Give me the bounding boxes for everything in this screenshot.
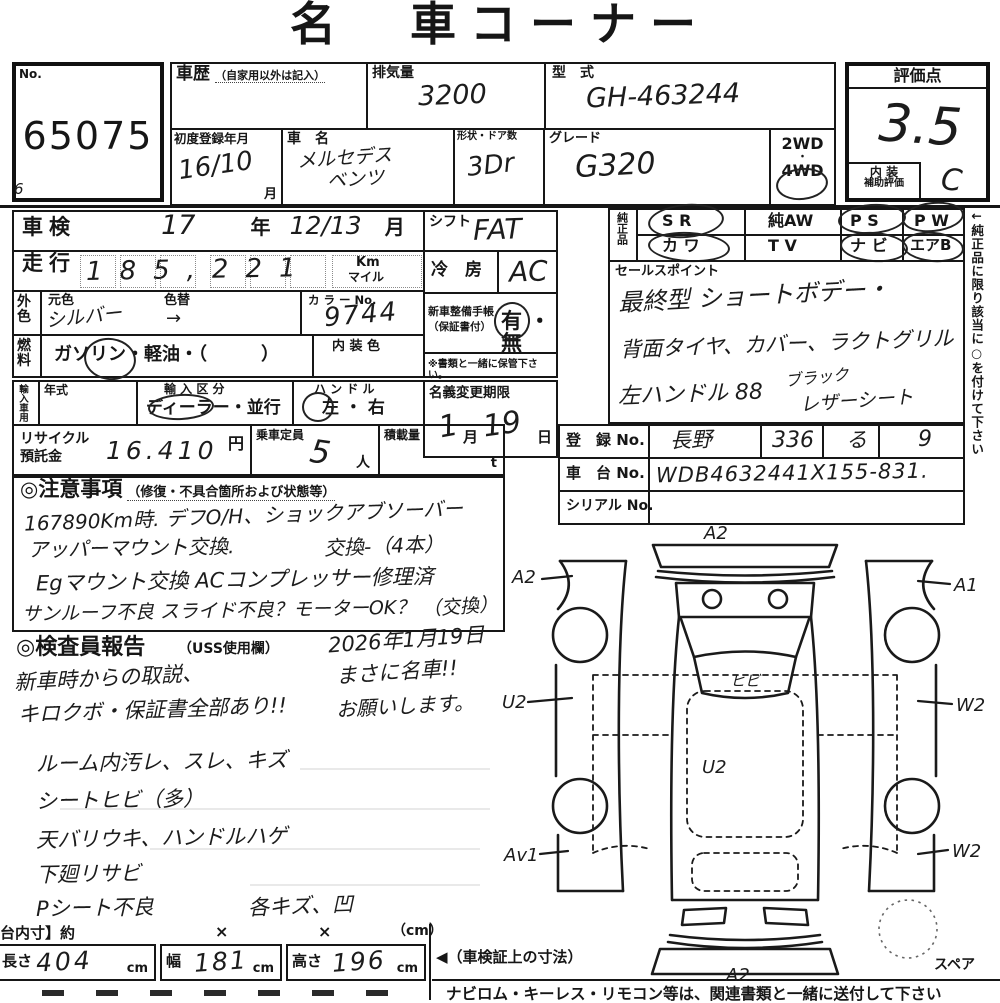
- length-value: 404: [35, 948, 93, 976]
- left-rear-wheel: [553, 779, 607, 833]
- grade-cell: グレード G320: [543, 128, 771, 206]
- shaken-month-value: 12/13: [290, 211, 362, 240]
- shaken-year-value: 17: [161, 210, 195, 241]
- auction-sheet: 名 車コーナー No. 65075 6 車歴 （自家用以外は記入） 排気量 32…: [0, 0, 1000, 1000]
- lot-number-box: No. 65075: [12, 62, 164, 202]
- sales-points-box: セールスポイント 最終型 ショートボデー・ 背面タイヤ、カバー、ラクトグリル 左…: [608, 260, 965, 424]
- headlight-left: [703, 590, 721, 608]
- history-note: （自家用以外は記入）: [215, 69, 325, 83]
- footer-glyph-sliver: [150, 990, 172, 996]
- interior-label-1: 内 装: [849, 166, 919, 179]
- width-unit: cm: [253, 962, 274, 976]
- caution-line-2b: 交換-（4本）: [324, 534, 445, 558]
- load-cell: 積載量 t: [378, 424, 505, 476]
- mileage-unit-mile: マイル: [348, 271, 384, 284]
- left-strip-inner: [619, 561, 626, 891]
- footer-glyph-sliver: [258, 990, 280, 996]
- int-color-label: 内 装 色: [332, 340, 380, 354]
- damage-label-right-mid: W2: [956, 695, 985, 716]
- headlight-right: [769, 590, 787, 608]
- history-cell: 車歴 （自家用以外は記入）: [170, 62, 368, 130]
- inspector-note-4: お願いします。: [336, 692, 475, 719]
- bleed-line: [150, 848, 480, 850]
- footer-glyph-sliver: [42, 990, 64, 996]
- import-row: 輸入車用 年式 輸 入 区 分 ディーラー・並行 ハ ン ド ル 左 ・ 右: [12, 380, 425, 426]
- mileage-value: 185,221: [86, 255, 313, 285]
- caution-box: ◎注意事項 （修復・不具合箇所および状態等） 167890Km時. デフO/H、…: [12, 476, 505, 632]
- import-divider-3: [292, 382, 294, 424]
- inspector-note-1: 新車時からの取説、: [14, 663, 204, 694]
- rear-trim-1: [670, 935, 820, 940]
- import-divider-1: [38, 382, 40, 424]
- recycle-label-1: リサイクル: [20, 432, 89, 447]
- bed-size-label: 台内寸】約: [0, 926, 75, 942]
- width-cell: 幅 181 cm: [160, 944, 282, 981]
- model-code-cell: 型 式 GH-463244: [544, 62, 836, 130]
- damage-label-rear: A2: [725, 965, 750, 985]
- a-pillar-right: [796, 619, 809, 657]
- height-unit: cm: [397, 962, 418, 976]
- inspector-note-3: まさに名車!!: [335, 658, 458, 687]
- import-year-label: 年式: [44, 384, 68, 397]
- ext-color-row: 外色 元色 色替 シルバー → カ ラ ー No. 9744: [12, 290, 425, 336]
- caution-line-4a: サンルーフ不良 スライド不良？モーターOK？: [22, 599, 416, 625]
- damage-diagram: A2 A2 A1 U2 W2 U2 ヒビ Av1 W2 A2 スペア: [500, 523, 992, 985]
- doors-value: 3Dr: [466, 147, 544, 181]
- score-label: 評価点: [849, 66, 986, 89]
- chassis-label: 車 台 No.: [566, 466, 645, 482]
- length-label: 長さ: [2, 954, 32, 970]
- shaken-year-unit: 年: [251, 215, 271, 239]
- footer-glyph-sliver: [312, 990, 334, 996]
- keep-note-cell: ※書類と一緒に保管下さい。: [423, 352, 558, 378]
- side-dashed-right: [840, 846, 897, 853]
- recycle-value: 16.410: [106, 438, 217, 463]
- body-edge-left: [671, 617, 679, 900]
- shift-value: FAT: [473, 215, 523, 245]
- serial-label: シリアル No.: [566, 499, 653, 514]
- shaken-month-unit: 月: [385, 215, 405, 239]
- int-color-divider: [312, 336, 314, 376]
- genuine-grid-v1: [744, 210, 746, 260]
- orig-color-label: 元色: [48, 294, 74, 308]
- caution-line-1: 167890Km時. デフO/H、ショックアブソーバー: [24, 498, 463, 533]
- rear-window-dashed: [692, 853, 798, 891]
- sales-line-3c: レザーシート: [799, 388, 914, 415]
- tick-left-mid: [528, 698, 572, 702]
- orig-color-value: シルバー: [45, 304, 123, 331]
- drive-2wd: 2WD: [771, 136, 834, 153]
- damage-label-windshield: ヒビ: [730, 672, 762, 690]
- recycle-label-2: 預託金: [20, 450, 62, 465]
- capacity-label: 乗車定員: [256, 429, 304, 442]
- serial-grid-v: [648, 492, 650, 523]
- footer-glyph-sliver: [96, 990, 118, 996]
- front-bumper: [653, 545, 837, 567]
- height-value: 196: [331, 947, 386, 976]
- reg-grid-v3: [878, 426, 880, 457]
- recolor-value: →: [166, 310, 181, 328]
- interior-value: C: [940, 165, 964, 197]
- right-strip-fender: [923, 561, 934, 609]
- serial-row: シリアル No.: [558, 490, 965, 525]
- model-code-value: GH-463244: [586, 76, 835, 112]
- mileage-label: 走行: [22, 251, 76, 275]
- taillight-right: [764, 908, 808, 925]
- sales-line-1: 最終型 ショートボデー・: [618, 277, 891, 315]
- genuine-label: 純正品: [616, 212, 628, 260]
- fuel-row: 燃料 ガソリン・軽油・（ ） 内 装 色: [12, 334, 425, 378]
- sales-line-3b: ブラック: [784, 367, 849, 390]
- bed-size-x2: ×: [318, 924, 331, 941]
- recolor-label: 色替: [164, 294, 190, 308]
- roof-outer-dashed: [593, 675, 897, 853]
- reg-grid-v2: [822, 426, 824, 457]
- shift-cell: シフト FAT: [423, 210, 558, 252]
- lot-number-label: No.: [19, 68, 42, 81]
- footer-left-rule: [429, 924, 431, 1000]
- damage-label-left-front: A2: [511, 567, 536, 588]
- keep-note: ※書類と一緒に保管下さい。: [428, 360, 556, 381]
- page-title: 名 車コーナー: [0, 0, 1000, 48]
- right-strip-rear: [869, 835, 934, 891]
- first-reg-unit: 月: [264, 188, 277, 202]
- lot-corner-mark: 6: [14, 182, 24, 197]
- ext-color-label: 外色: [17, 295, 35, 324]
- recycle-unit: 円: [228, 436, 244, 453]
- first-reg-label: 初度登録年月: [174, 132, 281, 145]
- left-strip-rear: [558, 835, 623, 891]
- import-label: 輸入車用: [17, 384, 27, 424]
- damage-label-front: A2: [703, 523, 728, 544]
- condition-line: ルーム内汚レ、スレ、キズ: [36, 750, 288, 775]
- color-no-divider: [300, 292, 302, 334]
- chassis-grid-v: [648, 459, 650, 490]
- caution-heading: ◎注意事項: [20, 477, 122, 501]
- footer-glyph-sliver: [366, 990, 388, 996]
- bleed-line: [300, 768, 490, 770]
- spare-tire-circle: [879, 900, 937, 958]
- bed-size-unit: （cm）: [392, 924, 443, 939]
- body-edge-right: [811, 617, 819, 900]
- width-value: 181: [193, 947, 248, 976]
- spare-label: スペア: [934, 957, 975, 973]
- car-name-cell: 車 名 メルセデス ベンツ: [281, 128, 455, 206]
- damage-label-roof: U2: [702, 757, 727, 778]
- fuel-divider: [40, 336, 42, 376]
- history-label: 車歴: [176, 64, 210, 84]
- tick-left-rear: [540, 851, 568, 854]
- right-front-wheel: [885, 608, 939, 662]
- doors-cell: 形状・ドア数 3Dr: [453, 128, 545, 206]
- front-trim-2: [656, 577, 834, 583]
- lot-number-value: 65075: [16, 114, 160, 158]
- right-rear-wheel: [885, 779, 939, 833]
- displacement-value: 3200: [418, 78, 545, 109]
- transfer-day-unit: 日: [537, 430, 552, 446]
- height-label: 高さ: [292, 954, 322, 970]
- first-reg-value: 16/10: [177, 144, 283, 184]
- ac-value: AC: [509, 257, 549, 286]
- caution-line-3: Egマウント交換 ACコンプレッサー修理済: [36, 567, 434, 595]
- shift-label: シフト: [429, 215, 471, 230]
- right-strip-inner: [866, 561, 873, 891]
- genuine-item-aw: 純AW: [768, 213, 813, 230]
- condition-line: Pシート不良: [36, 897, 154, 920]
- ac-label: 冷 房: [431, 262, 482, 280]
- load-label: 積載量: [384, 429, 420, 442]
- damage-label-left-mid: U2: [502, 692, 527, 713]
- sales-points-label: セールスポイント: [615, 265, 719, 279]
- interior-label-cell: 内 装 補助評価: [849, 162, 921, 198]
- ac-cell: 冷 房 AC: [423, 250, 558, 294]
- bed-size-x1: ×: [215, 924, 228, 941]
- reg-grid-v1: [760, 426, 762, 457]
- chassis-value: WDB4632441X155-831.: [656, 461, 929, 487]
- capacity-value: 5: [308, 435, 333, 470]
- length-cell: 長さ 404 cm: [0, 944, 156, 981]
- capacity-cell: 乗車定員 5 人: [250, 424, 380, 476]
- front-mask: [676, 583, 814, 617]
- reg-kana-value: る: [846, 430, 867, 451]
- front-trim-1: [658, 571, 832, 576]
- inspector-heading-note: （USS使用欄）: [178, 642, 279, 657]
- shaken-label: 車検: [22, 215, 76, 239]
- tick-right-mid: [918, 701, 952, 704]
- service-book-label-2: （保証書付）: [428, 322, 491, 333]
- condition-line: 下廻リサビ: [36, 863, 141, 886]
- inspector-note-2: キロクボ・保証書全部あり!!: [18, 695, 287, 725]
- sales-line-2: 背面タイヤ、カバー、ラクトグリル: [620, 328, 954, 361]
- doors-label: 形状・ドア数: [457, 132, 543, 143]
- first-reg-cell: 初度登録年月 16/10 月: [170, 128, 283, 206]
- score-value: 3.5: [877, 97, 963, 155]
- recycle-cell: リサイクル 預託金 16.410 円: [12, 424, 252, 476]
- import-divider-2: [136, 382, 138, 424]
- shaken-row: 車検 17 年 12/13 月: [12, 210, 425, 252]
- rear-trim-2: [668, 942, 822, 948]
- reg-digit-value: 9: [918, 429, 932, 451]
- reg-number-value: 336: [772, 430, 814, 452]
- reg-area-value: 長野: [670, 429, 713, 451]
- chassis-row: 車 台 No. WDB4632441X155-831.: [558, 457, 965, 492]
- displacement-label: 排気量: [372, 66, 544, 81]
- damage-label-right-rear: W2: [952, 841, 981, 862]
- inspector-heading: ◎検査員報告: [16, 636, 145, 659]
- color-no-value: 9744: [323, 299, 399, 331]
- service-book-cell: 新車整備手帳 （保証書付） 有 ・ 無: [423, 292, 558, 354]
- caution-line-2a: アッパーマウント交換.: [28, 536, 235, 560]
- bleed-line: [250, 884, 480, 886]
- load-unit: t: [491, 457, 497, 471]
- taillight-left: [682, 908, 726, 925]
- footer-glyph-sliver: [204, 990, 226, 996]
- transfer-label: 名義変更期限: [429, 386, 510, 400]
- displacement-cell: 排気量 3200: [366, 62, 546, 130]
- length-unit: cm: [127, 962, 148, 976]
- score-box: 評価点 3.5 内 装 補助評価 C: [845, 62, 990, 202]
- reg-grid-v0: [648, 426, 650, 457]
- sales-line-3a: 左ハンドル 88: [618, 381, 764, 408]
- damage-label-right-front: A1: [953, 575, 978, 596]
- mileage-row: 走行 185,221 Km マイル: [12, 250, 425, 292]
- height-cell: 高さ 196 cm: [286, 944, 426, 981]
- left-strip-fender: [558, 561, 569, 609]
- interior-label-2: 補助評価: [849, 179, 919, 190]
- mileage-unit-km: Km: [356, 256, 380, 270]
- caution-line-4b: （交換）: [421, 595, 498, 619]
- width-label: 幅: [166, 954, 181, 970]
- service-book-label-1: 新車整備手帳: [428, 306, 494, 318]
- a-pillar-left: [681, 619, 694, 657]
- condition-extra: 各キズ、凹: [248, 894, 354, 919]
- left-front-wheel: [553, 608, 607, 662]
- handle-left-circle: [302, 392, 334, 422]
- genuine-item-tv: T V: [768, 238, 797, 255]
- fuel-label: 燃料: [17, 339, 35, 368]
- ac-divider: [497, 252, 499, 292]
- reg-no-label: 登 録 No.: [566, 433, 645, 449]
- reg-no-row: 登 録 No. 長野 336 る 9: [558, 424, 965, 459]
- caution-heading-note: （修復・不具合箇所および状態等）: [127, 485, 335, 501]
- bleed-line: [60, 808, 490, 810]
- ext-color-divider: [40, 292, 42, 334]
- damage-label-left-rear: Av1: [503, 845, 538, 866]
- capacity-unit: 人: [356, 456, 370, 471]
- genuine-side-note: ←純正品に限り該当に○を付けて下さい: [970, 208, 983, 548]
- grade-value: G320: [574, 143, 769, 183]
